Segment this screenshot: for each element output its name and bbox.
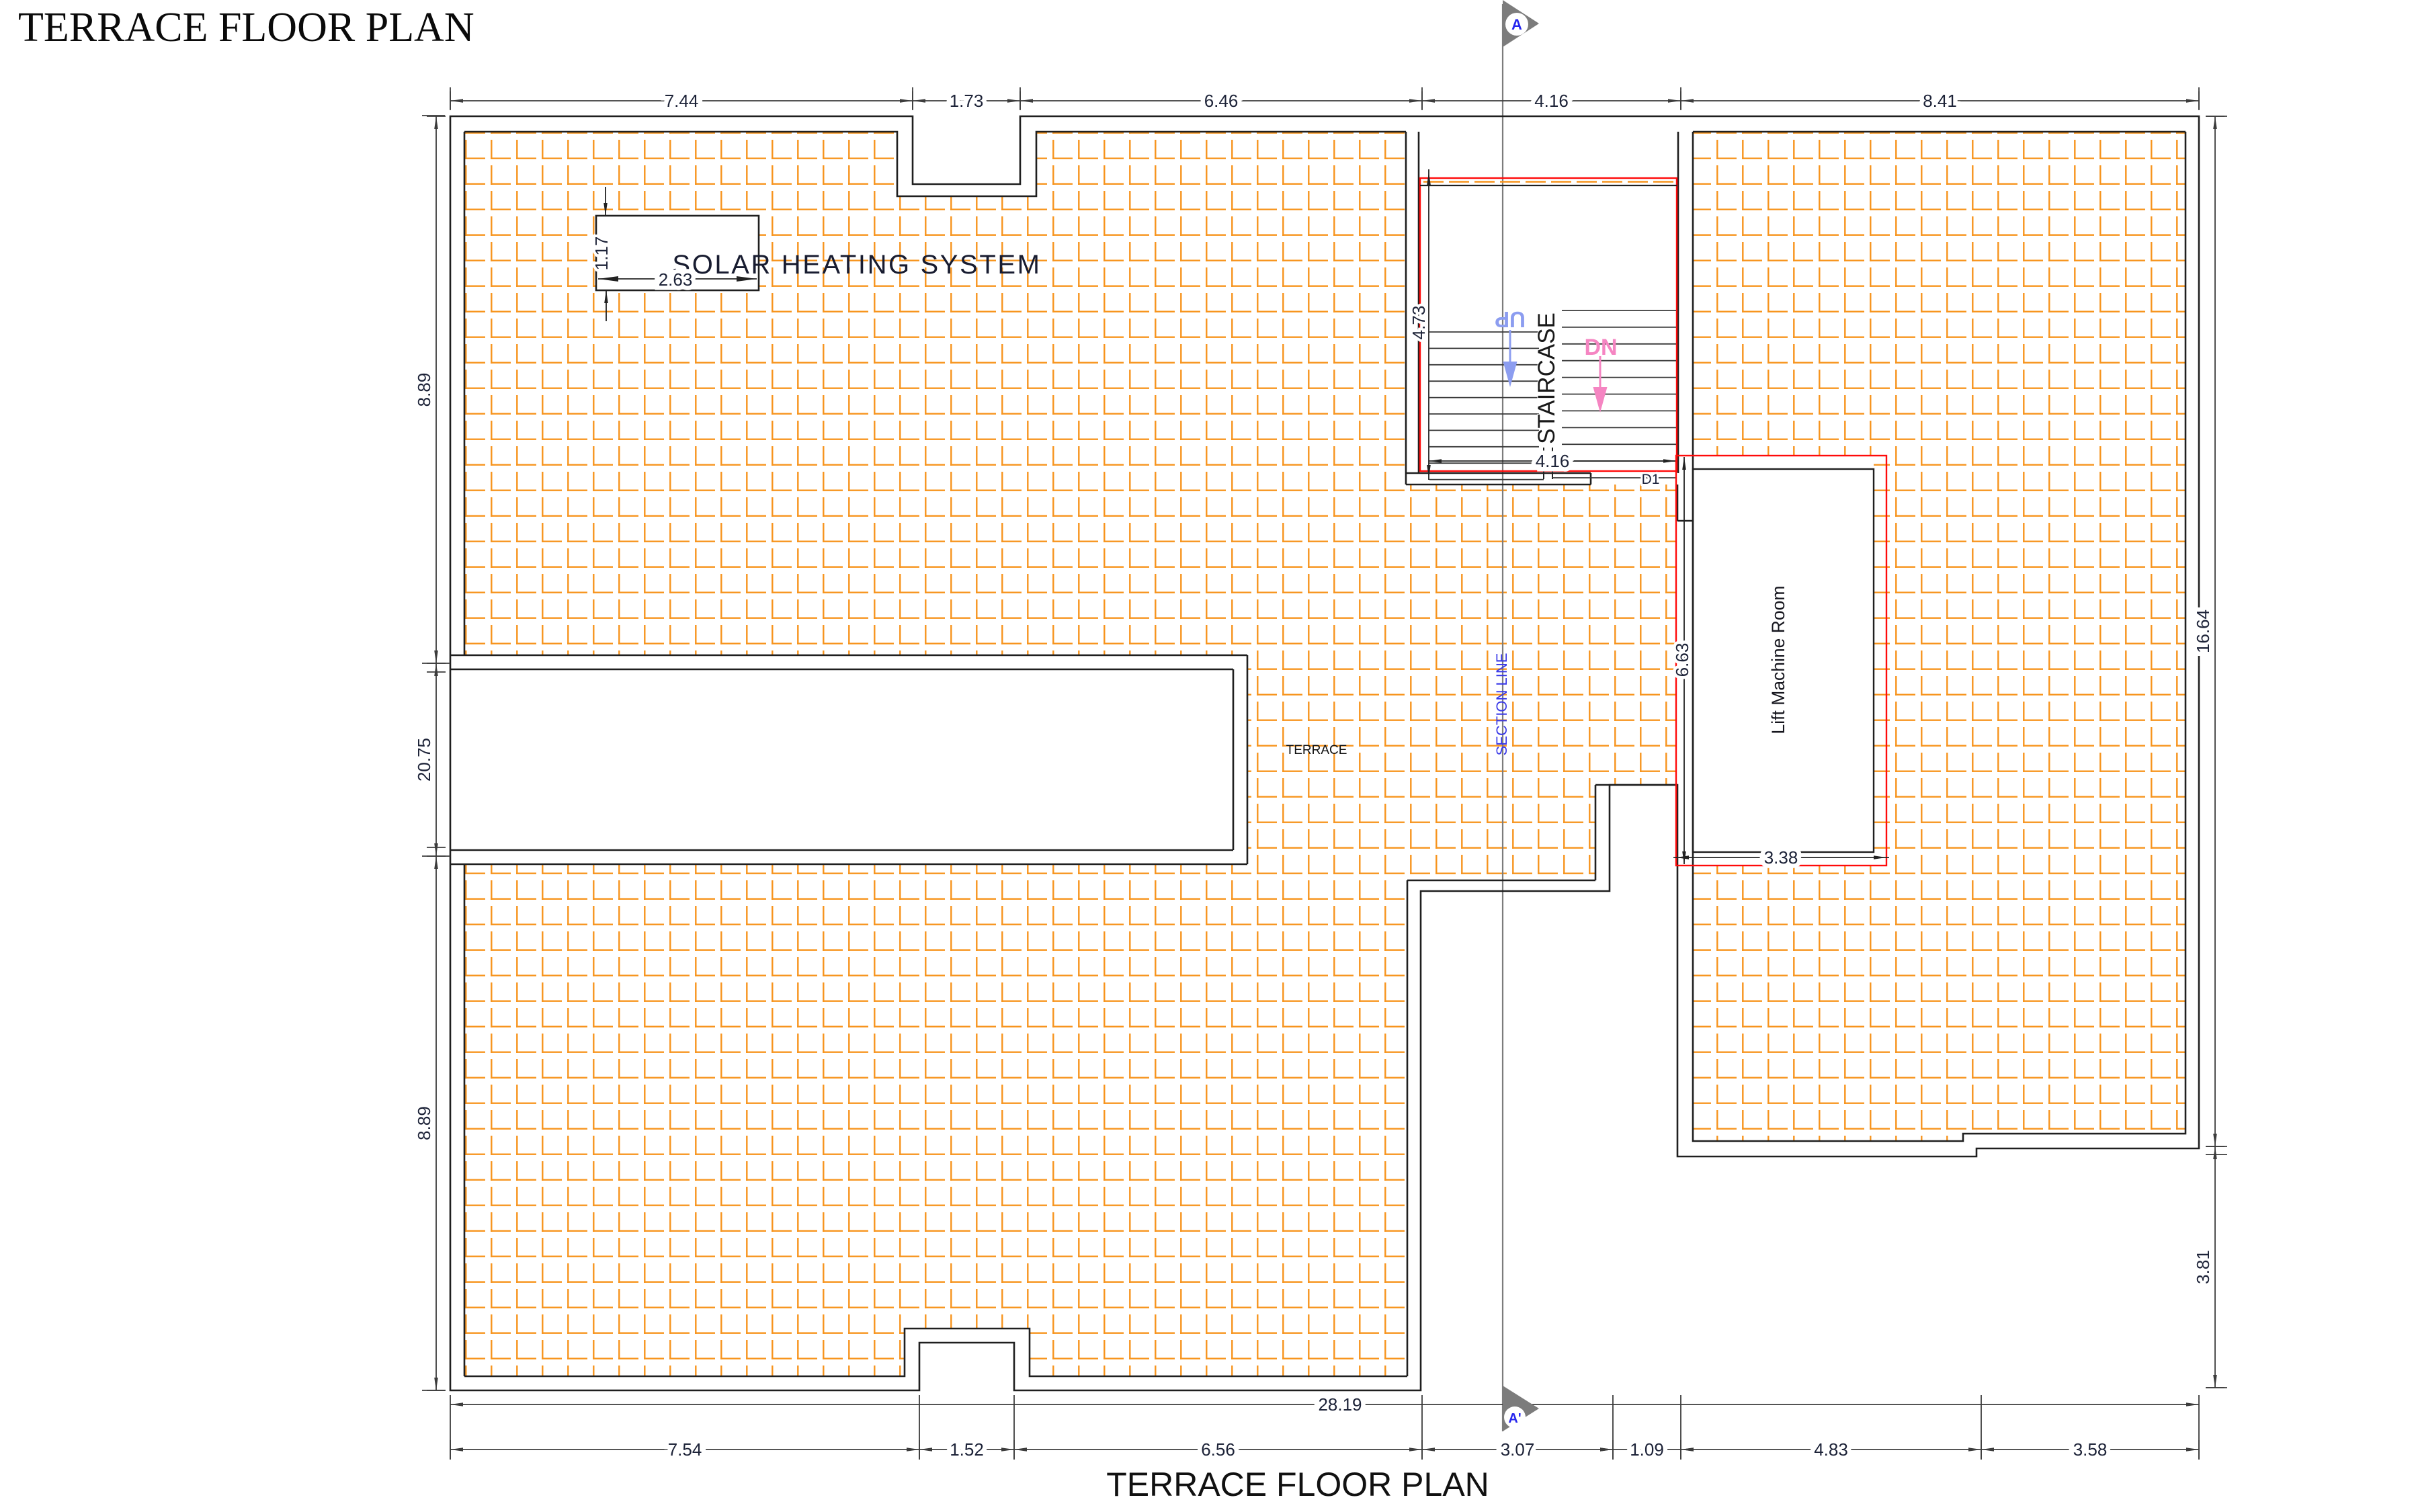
svg-text:28.19: 28.19 (1318, 1394, 1362, 1415)
svg-text:TERRACE FLOOR PLAN: TERRACE FLOOR PLAN (1106, 1466, 1489, 1503)
svg-text:6.56: 6.56 (1201, 1439, 1235, 1460)
svg-text:8.89: 8.89 (414, 373, 434, 407)
svg-text:20.75: 20.75 (414, 738, 434, 782)
svg-text:SOLAR HEATING SYSTEM: SOLAR HEATING SYSTEM (672, 250, 1041, 280)
svg-text:6.46: 6.46 (1204, 91, 1239, 111)
svg-text:A: A (1511, 16, 1522, 33)
svg-text:A': A' (1508, 1411, 1521, 1426)
svg-text:1.73: 1.73 (950, 91, 984, 111)
svg-text:SECTION LINE: SECTION LINE (1493, 653, 1510, 756)
svg-text:7.44: 7.44 (665, 91, 699, 111)
svg-text:16.64: 16.64 (2193, 610, 2213, 653)
svg-text:4.83: 4.83 (1814, 1439, 1848, 1460)
svg-text:UP: UP (1495, 307, 1526, 332)
svg-text:3.07: 3.07 (1501, 1439, 1535, 1460)
svg-text:8.41: 8.41 (1923, 91, 1957, 111)
svg-text:3.81: 3.81 (2193, 1250, 2213, 1284)
svg-text:TERRACE: TERRACE (1286, 743, 1347, 757)
svg-text:3.38: 3.38 (1764, 847, 1798, 868)
svg-text:4.16: 4.16 (1534, 91, 1569, 111)
svg-text:D1: D1 (1642, 472, 1660, 487)
svg-text:4.73: 4.73 (1409, 306, 1429, 340)
svg-text:TERRACE FLOOR PLAN: TERRACE FLOOR PLAN (18, 5, 474, 50)
svg-text:2.63: 2.63 (659, 269, 693, 290)
svg-text:3.58: 3.58 (2073, 1439, 2108, 1460)
svg-text:7.54: 7.54 (668, 1439, 702, 1460)
svg-text:6.63: 6.63 (1672, 643, 1692, 677)
svg-text:1.17: 1.17 (591, 237, 612, 271)
svg-text:4.16: 4.16 (1536, 451, 1570, 471)
svg-text:1.52: 1.52 (950, 1439, 984, 1460)
svg-text:STAIRCASE: STAIRCASE (1534, 312, 1560, 444)
svg-text:1.09: 1.09 (1630, 1439, 1664, 1460)
svg-text:8.89: 8.89 (414, 1106, 434, 1140)
svg-text:Lift Machine Room: Lift Machine Room (1768, 586, 1788, 734)
